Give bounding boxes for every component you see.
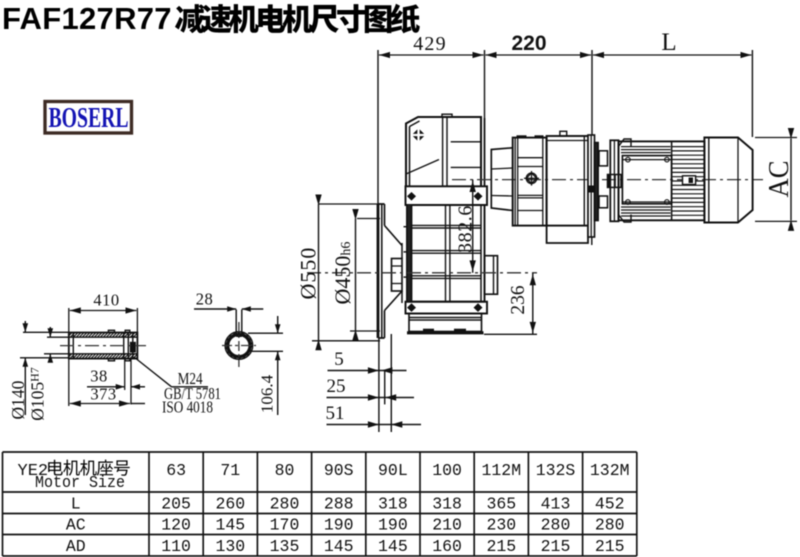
svg-text:413: 413 [541, 495, 571, 514]
svg-text:145: 145 [215, 516, 245, 535]
svg-text:5: 5 [334, 349, 344, 370]
svg-text:145: 145 [324, 537, 354, 556]
svg-text:382.6: 382.6 [454, 205, 476, 253]
svg-text:280: 280 [541, 516, 571, 535]
svg-text:Ø450h6: Ø450h6 [330, 242, 355, 305]
svg-text:215: 215 [486, 537, 516, 556]
svg-text:280: 280 [270, 495, 300, 514]
svg-text:410: 410 [93, 291, 119, 310]
svg-text:38: 38 [90, 367, 108, 386]
svg-text:Motor Size: Motor Size [35, 474, 125, 493]
svg-text:135: 135 [270, 537, 300, 556]
svg-text:318: 318 [432, 495, 462, 514]
svg-text:ISO 4018: ISO 4018 [162, 398, 213, 417]
svg-text:AD: AD [66, 537, 86, 556]
svg-text:28: 28 [196, 290, 214, 309]
svg-text:100: 100 [432, 461, 462, 480]
svg-text:280: 280 [595, 516, 625, 535]
svg-text:71: 71 [220, 461, 240, 480]
svg-text:170: 170 [270, 516, 300, 535]
svg-text:373: 373 [90, 385, 116, 404]
svg-text:106.4: 106.4 [258, 374, 277, 413]
svg-text:AC: AC [763, 161, 795, 198]
svg-text:210: 210 [432, 516, 462, 535]
svg-text:145: 145 [378, 537, 408, 556]
svg-text:260: 260 [215, 495, 245, 514]
svg-text:215: 215 [541, 537, 571, 556]
svg-text:63: 63 [166, 461, 186, 480]
svg-text:Ø140: Ø140 [8, 380, 28, 419]
svg-text:80: 80 [275, 461, 295, 480]
svg-text:110: 110 [161, 537, 191, 556]
svg-text:L: L [661, 29, 676, 56]
svg-text:160: 160 [432, 537, 462, 556]
svg-text:Ø105H7: Ø105H7 [28, 367, 48, 421]
svg-text:365: 365 [486, 495, 516, 514]
svg-text:112M: 112M [481, 461, 521, 480]
svg-text:Ø550: Ø550 [296, 247, 321, 300]
svg-text:BOSERL: BOSERL [49, 103, 129, 134]
svg-text:FAF127R77: FAF127R77 [2, 1, 172, 36]
svg-text:318: 318 [378, 495, 408, 514]
svg-text:452: 452 [595, 495, 625, 514]
svg-text:230: 230 [486, 516, 516, 535]
svg-text:120: 120 [161, 516, 191, 535]
svg-text:25: 25 [327, 376, 346, 397]
svg-text:429: 429 [413, 33, 447, 55]
svg-text:236: 236 [508, 285, 529, 315]
svg-text:130: 130 [215, 537, 245, 556]
svg-text:90L: 90L [378, 461, 408, 480]
svg-text:L: L [71, 495, 81, 514]
svg-text:90S: 90S [324, 461, 354, 480]
svg-text:132M: 132M [590, 461, 630, 480]
svg-text:220: 220 [511, 32, 546, 55]
svg-text:132S: 132S [536, 461, 576, 480]
svg-text:205: 205 [161, 495, 191, 514]
svg-text:190: 190 [324, 516, 354, 535]
svg-text:190: 190 [378, 516, 408, 535]
svg-text:51: 51 [326, 403, 345, 424]
svg-text:288: 288 [324, 495, 354, 514]
svg-text:215: 215 [595, 537, 625, 556]
svg-text:AC: AC [66, 516, 86, 535]
